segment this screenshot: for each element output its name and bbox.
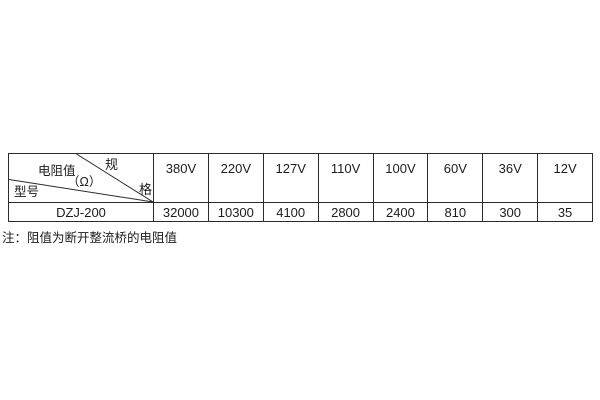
page: 规 格 电阻值 （Ω） 型号 380V 220V 127V 110V 100V … (0, 0, 600, 400)
corner-spec-char-bottom: 格 (139, 183, 152, 196)
resistance-cell: 810 (428, 203, 483, 222)
corner-model-label: 型号 (14, 186, 39, 199)
voltage-header: 110V (318, 154, 373, 203)
resistance-cell: 4100 (263, 203, 318, 222)
table-row: DZJ-200 32000 10300 4100 2800 2400 810 3… (9, 203, 593, 222)
resistance-cell: 2800 (318, 203, 373, 222)
resistance-cell: 2400 (373, 203, 428, 222)
voltage-header: 12V (538, 154, 593, 203)
header-row: 规 格 电阻值 （Ω） 型号 380V 220V 127V 110V 100V … (9, 154, 593, 203)
voltage-header: 36V (483, 154, 538, 203)
model-cell: DZJ-200 (9, 203, 154, 222)
voltage-header: 380V (154, 154, 209, 203)
resistance-cell: 10300 (208, 203, 263, 222)
resistance-cell: 300 (483, 203, 538, 222)
voltage-header: 60V (428, 154, 483, 203)
voltage-header: 100V (373, 154, 428, 203)
diagonal-corner-cell: 规 格 电阻值 （Ω） 型号 (9, 154, 154, 203)
resistance-cell: 35 (538, 203, 593, 222)
corner-spec-char-top: 规 (105, 158, 118, 171)
footnote: 注：阻值为断开整流桥的电阻值 (2, 227, 177, 246)
voltage-header: 127V (263, 154, 318, 203)
resistance-cell: 32000 (154, 203, 209, 222)
voltage-header: 220V (208, 154, 263, 203)
corner-resistance-unit: （Ω） (67, 176, 101, 189)
spec-table: 规 格 电阻值 （Ω） 型号 380V 220V 127V 110V 100V … (8, 153, 593, 222)
